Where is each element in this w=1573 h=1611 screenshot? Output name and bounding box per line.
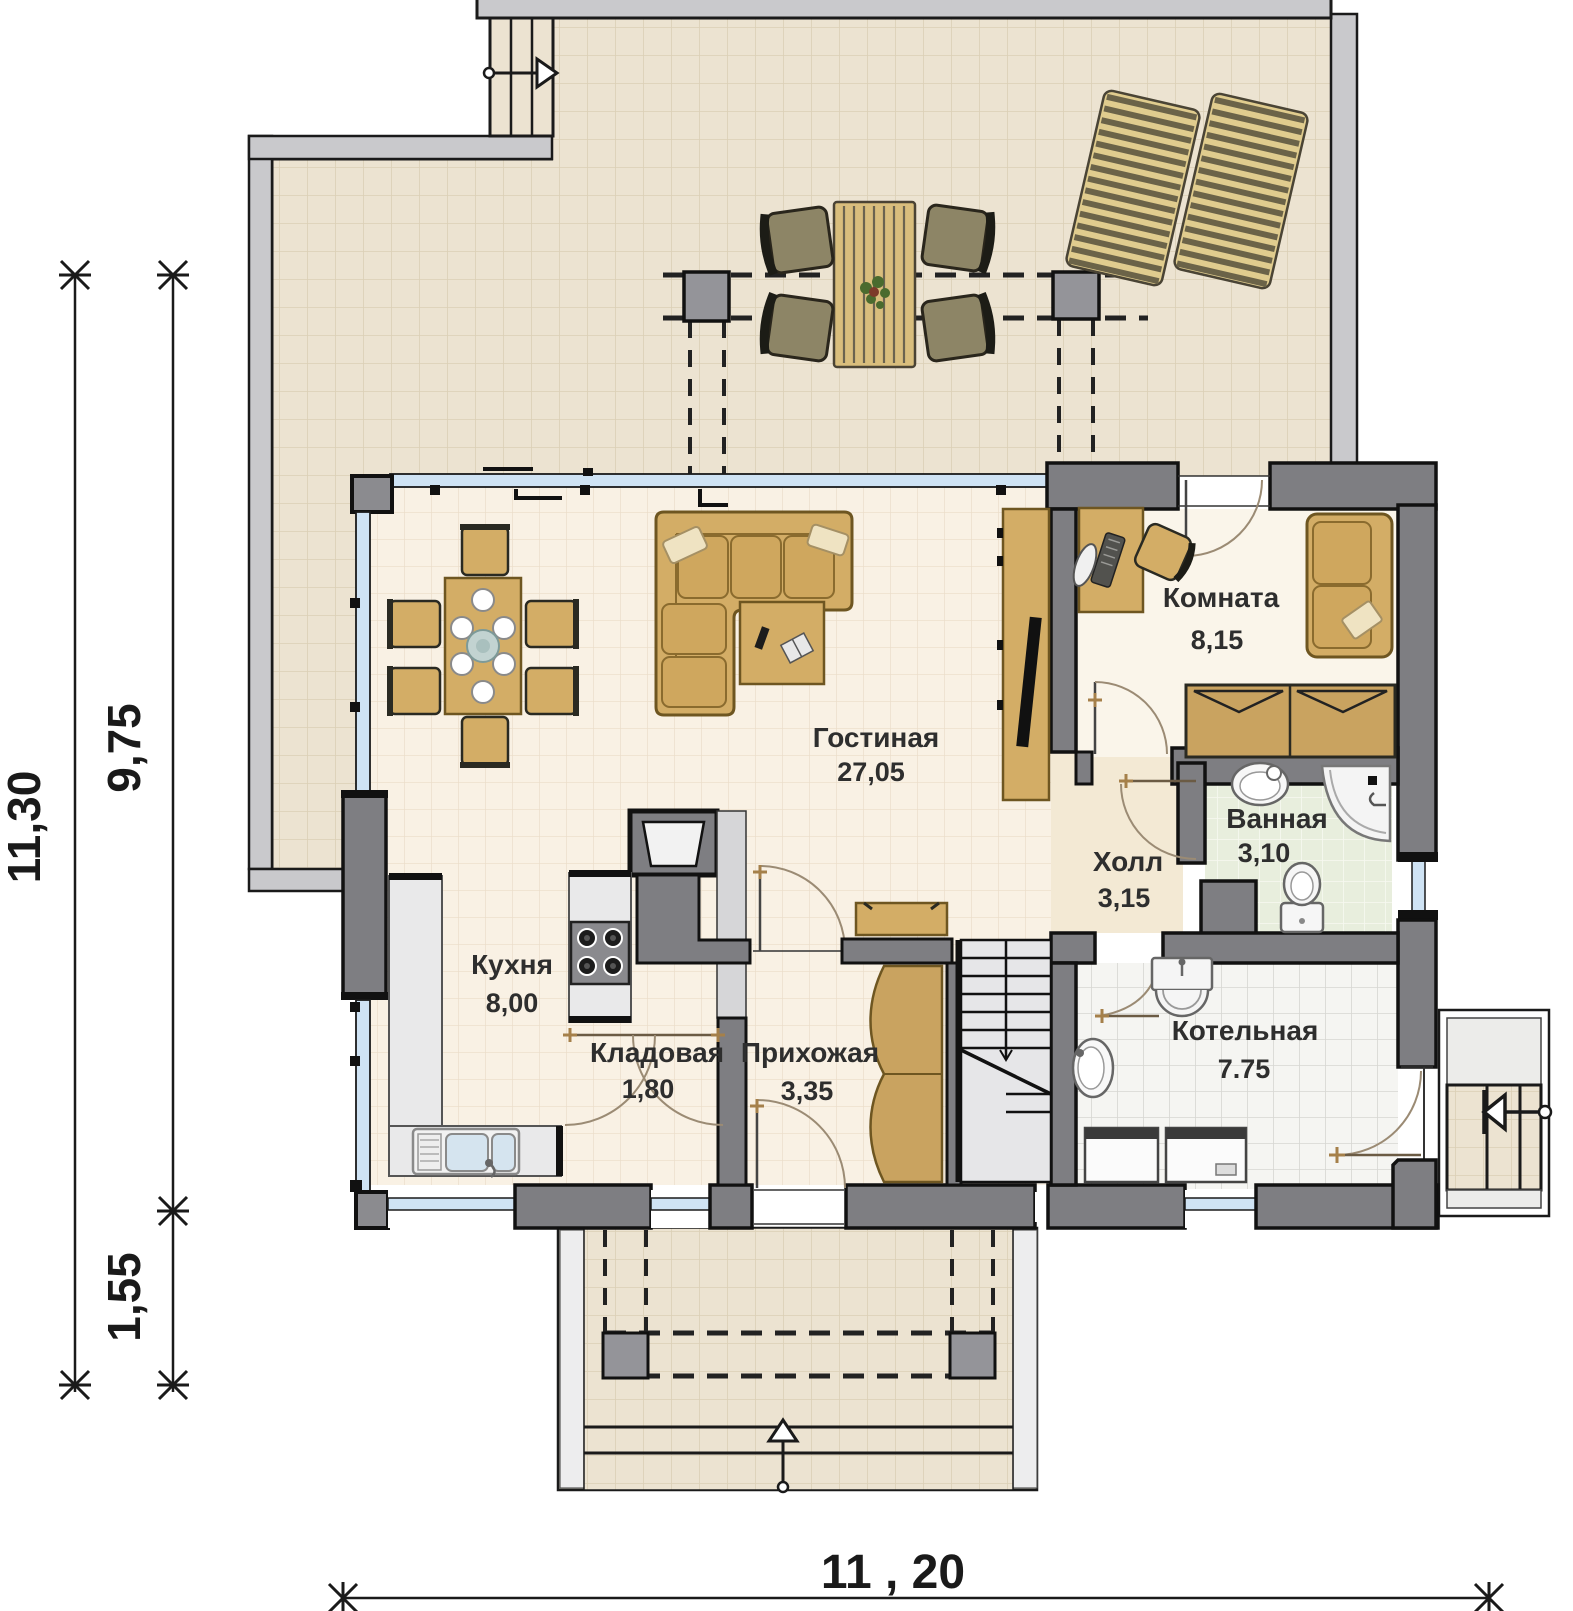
svg-text:8,15: 8,15 <box>1191 625 1244 655</box>
svg-text:Холл: Холл <box>1093 846 1163 877</box>
svg-text:11,30: 11,30 <box>0 771 50 884</box>
svg-text:Комната: Комната <box>1163 582 1280 613</box>
svg-text:9,75: 9,75 <box>98 703 150 793</box>
svg-text:3,15: 3,15 <box>1098 883 1151 913</box>
svg-text:1,80: 1,80 <box>622 1074 675 1104</box>
svg-text:27,05: 27,05 <box>837 757 905 787</box>
svg-text:8,00: 8,00 <box>486 988 539 1018</box>
svg-text:Ванная: Ванная <box>1226 803 1328 834</box>
svg-text:Кладовая: Кладовая <box>590 1037 724 1068</box>
svg-text:11 , 20: 11 , 20 <box>821 1546 965 1599</box>
svg-text:7.75: 7.75 <box>1218 1054 1271 1084</box>
svg-text:1,55: 1,55 <box>98 1252 150 1342</box>
svg-text:3,35: 3,35 <box>781 1076 834 1106</box>
svg-text:Котельная: Котельная <box>1172 1015 1319 1046</box>
svg-text:3,10: 3,10 <box>1238 838 1291 868</box>
svg-text:Кухня: Кухня <box>471 949 553 980</box>
svg-text:Прихожая: Прихожая <box>741 1037 879 1068</box>
svg-text:Гостиная: Гостиная <box>813 722 940 753</box>
